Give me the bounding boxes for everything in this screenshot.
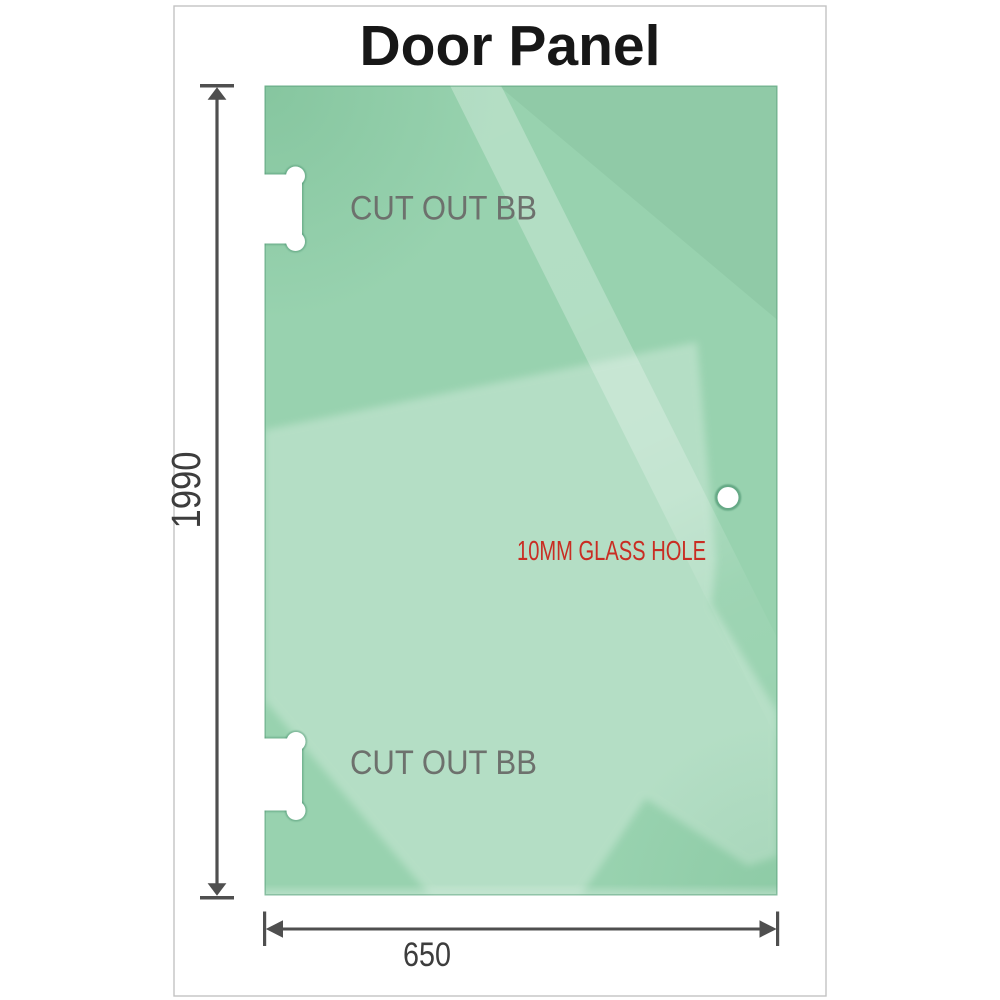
svg-text:10MM GLASS HOLE: 10MM GLASS HOLE xyxy=(517,535,706,566)
svg-text:Door Panel: Door Panel xyxy=(360,14,661,78)
svg-text:CUT OUT BB: CUT OUT BB xyxy=(350,744,537,782)
svg-text:650: 650 xyxy=(403,936,451,974)
svg-text:CUT OUT BB: CUT OUT BB xyxy=(350,190,537,228)
svg-text:1990: 1990 xyxy=(163,452,209,529)
